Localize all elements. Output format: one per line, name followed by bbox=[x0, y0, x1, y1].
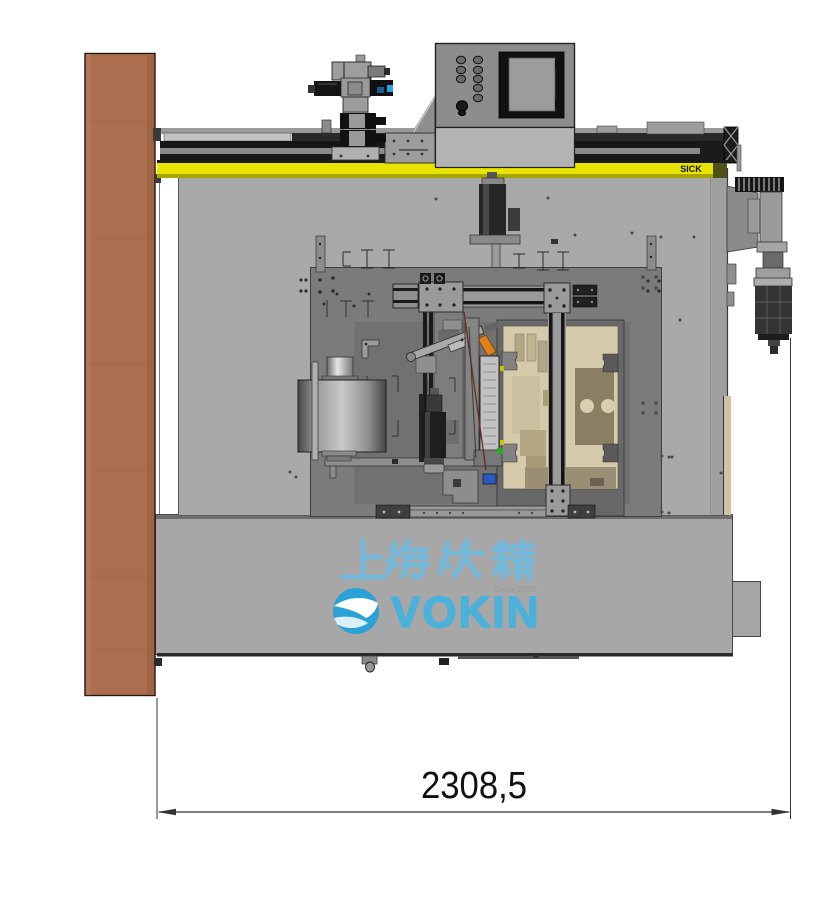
svg-text:2308,5: 2308,5 bbox=[421, 765, 527, 807]
svg-text:TM: TM bbox=[378, 630, 387, 636]
svg-text:VOKIN: VOKIN bbox=[391, 588, 540, 637]
svg-text:SICK: SICK bbox=[680, 164, 702, 174]
